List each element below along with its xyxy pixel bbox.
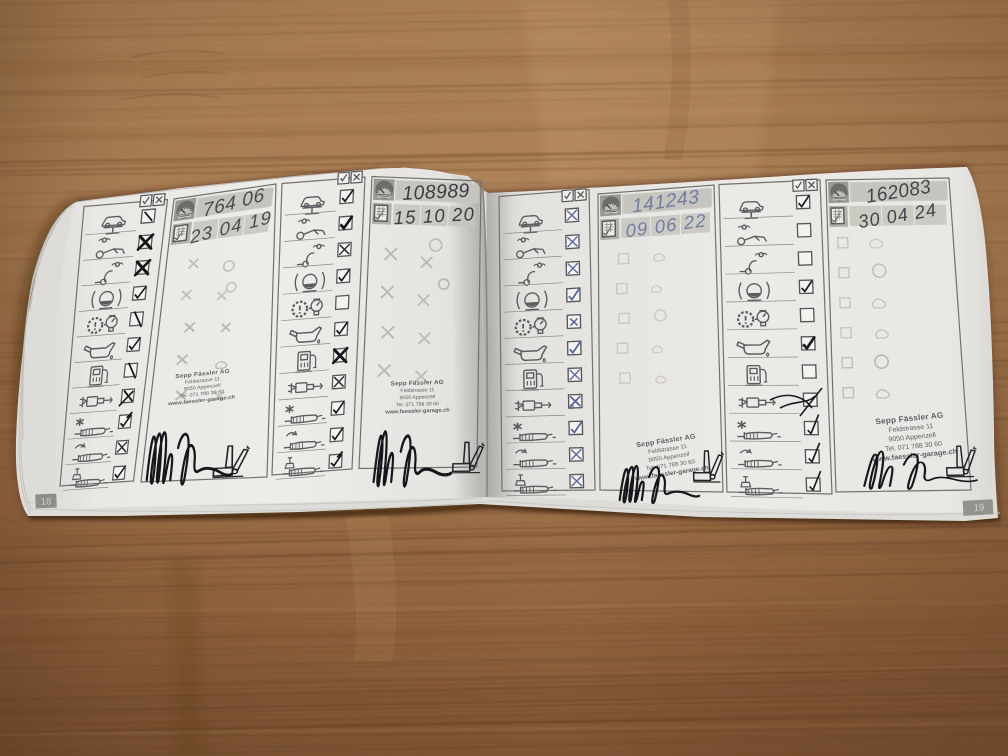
svg-text:9050 Appenzell: 9050 Appenzell (399, 394, 435, 401)
svg-text:18: 18 (41, 496, 52, 507)
svg-text:108989: 108989 (402, 180, 470, 205)
svg-text:15 10 20: 15 10 20 (393, 203, 475, 228)
svg-text:19: 19 (973, 502, 984, 514)
svg-text:Feldstrasse 11: Feldstrasse 11 (400, 387, 434, 394)
